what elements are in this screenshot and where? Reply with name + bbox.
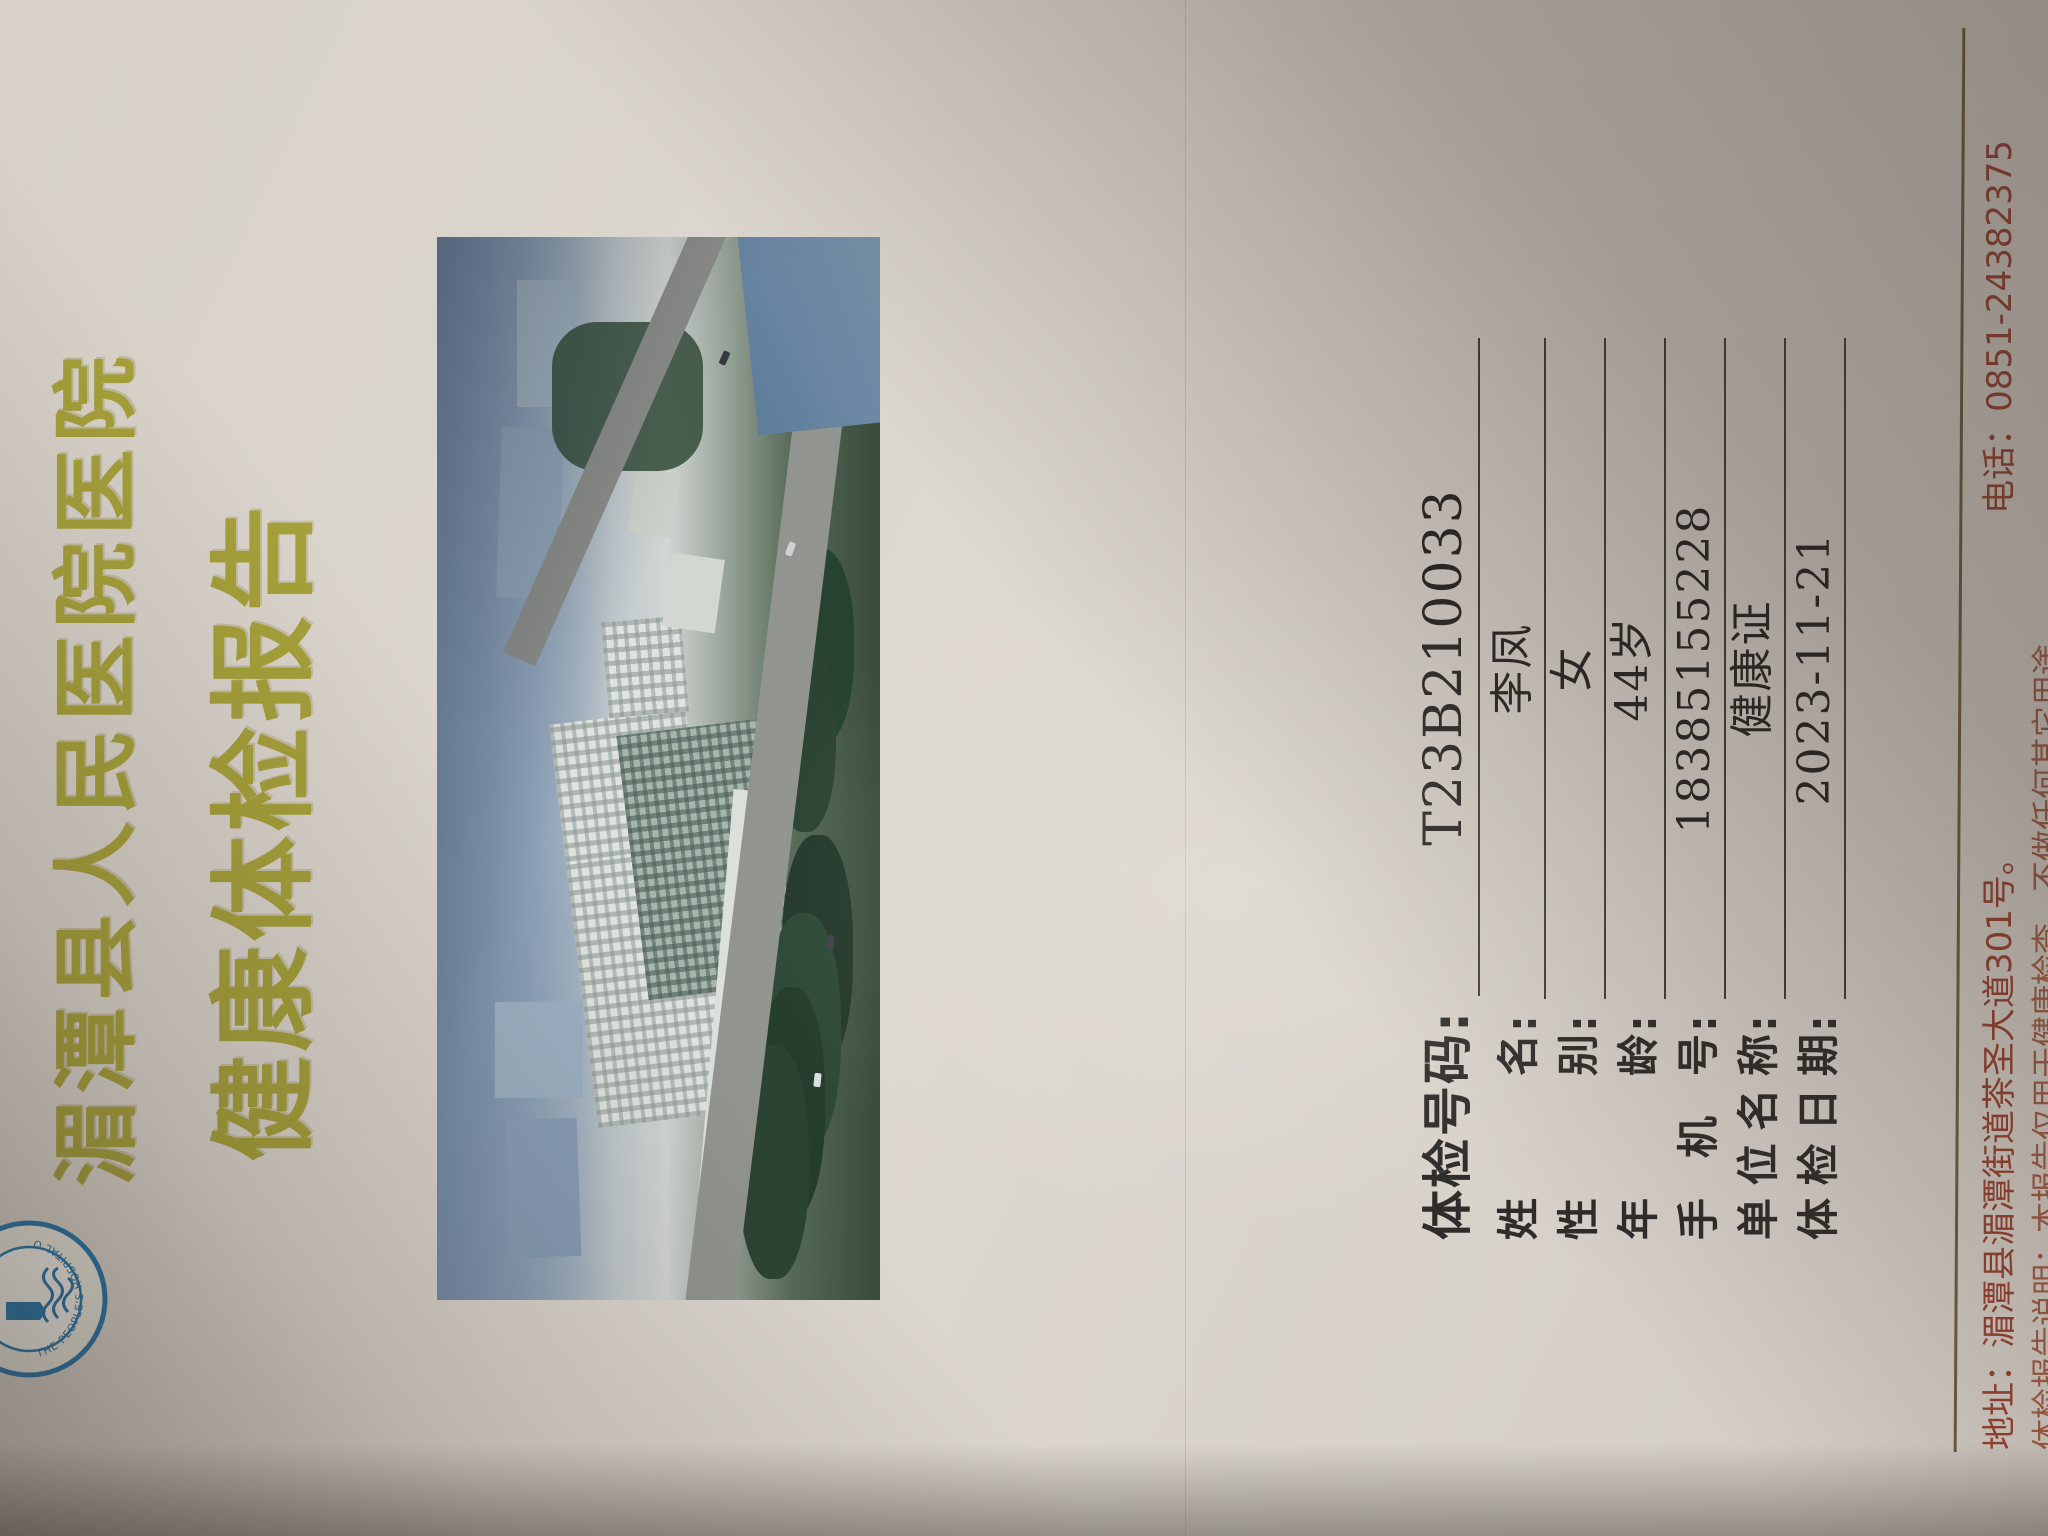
field-colon: :: [1737, 1015, 1786, 1032]
field-label: 体检号码: [1408, 1034, 1480, 1240]
form-row-unit: 单位名称: 健康证: [1728, 338, 1786, 1240]
disclaimer-text: 体检报告说明：本报告仅用于健康检查，不做任何其它用途: [2022, 30, 2048, 1450]
field-value-name: 李凤: [1476, 338, 1540, 999]
field-value-phone: 18385155228: [1669, 338, 1720, 999]
logo-shield-icon: [6, 1302, 46, 1320]
form-row-exam-number: 体检号码: T23B210033: [1396, 338, 1480, 1240]
address-text: 地址：湄潭县湄潭街道茶圣大道301号。: [1972, 841, 2021, 1450]
field-colon: :: [1422, 1012, 1480, 1032]
field-colon: :: [1797, 1015, 1846, 1032]
field-value-exam-date: 2023-11-21: [1789, 338, 1840, 999]
hospital-logo: THE PEOPLE'S HOSPITAL OF MEITAN 1951: [0, 1218, 110, 1380]
phone-text: 电话：0851-24382375: [1972, 140, 2021, 514]
field-colon: :: [1497, 1015, 1546, 1032]
hospital-aerial-photo: [437, 237, 880, 1300]
field-value-unit: 健康证: [1716, 338, 1780, 999]
form-row-age: 年龄: 44岁: [1608, 338, 1666, 1240]
photographed-report-cover: 湄潭县人民医院医院 健康体检报告 THE PEOPLE'S HOSPITAL O…: [0, 0, 2048, 1536]
field-colon: :: [1617, 1015, 1666, 1032]
footer-divider-line: [1954, 28, 1966, 1452]
field-label: 年龄: [1605, 1034, 1666, 1240]
field-value-exam-number: T23B210033: [1414, 338, 1474, 996]
field-underline: T23B210033: [1394, 338, 1480, 996]
field-underline: 健康证: [1726, 338, 1786, 999]
field-label: 手机号: [1665, 1034, 1726, 1240]
field-value-gender: 女: [1536, 338, 1600, 999]
report-page: 湄潭县人民医院医院 健康体检报告 THE PEOPLE'S HOSPITAL O…: [0, 0, 2048, 1536]
field-label: 性别: [1545, 1034, 1606, 1240]
field-label: 单位名称: [1725, 1034, 1786, 1240]
field-label: 姓名: [1485, 1034, 1546, 1240]
photo-color-wash: [437, 237, 880, 1300]
field-underline: 2023-11-21: [1786, 338, 1846, 999]
field-colon: :: [1677, 1015, 1726, 1032]
field-colon: :: [1557, 1015, 1606, 1032]
paper-crease: [1185, 0, 1186, 1536]
field-value-age: 44岁: [1596, 338, 1660, 999]
field-label: 体检日期: [1785, 1034, 1846, 1240]
footer-contact-line: 地址：湄潭县湄潭街道茶圣大道301号。 电话：0851-24382375: [1972, 140, 2021, 1450]
form-row-exam-date: 体检日期: 2023-11-21: [1788, 338, 1846, 1240]
field-underline: 44岁: [1606, 338, 1666, 999]
report-title: 健康体检报告: [178, 64, 332, 1536]
